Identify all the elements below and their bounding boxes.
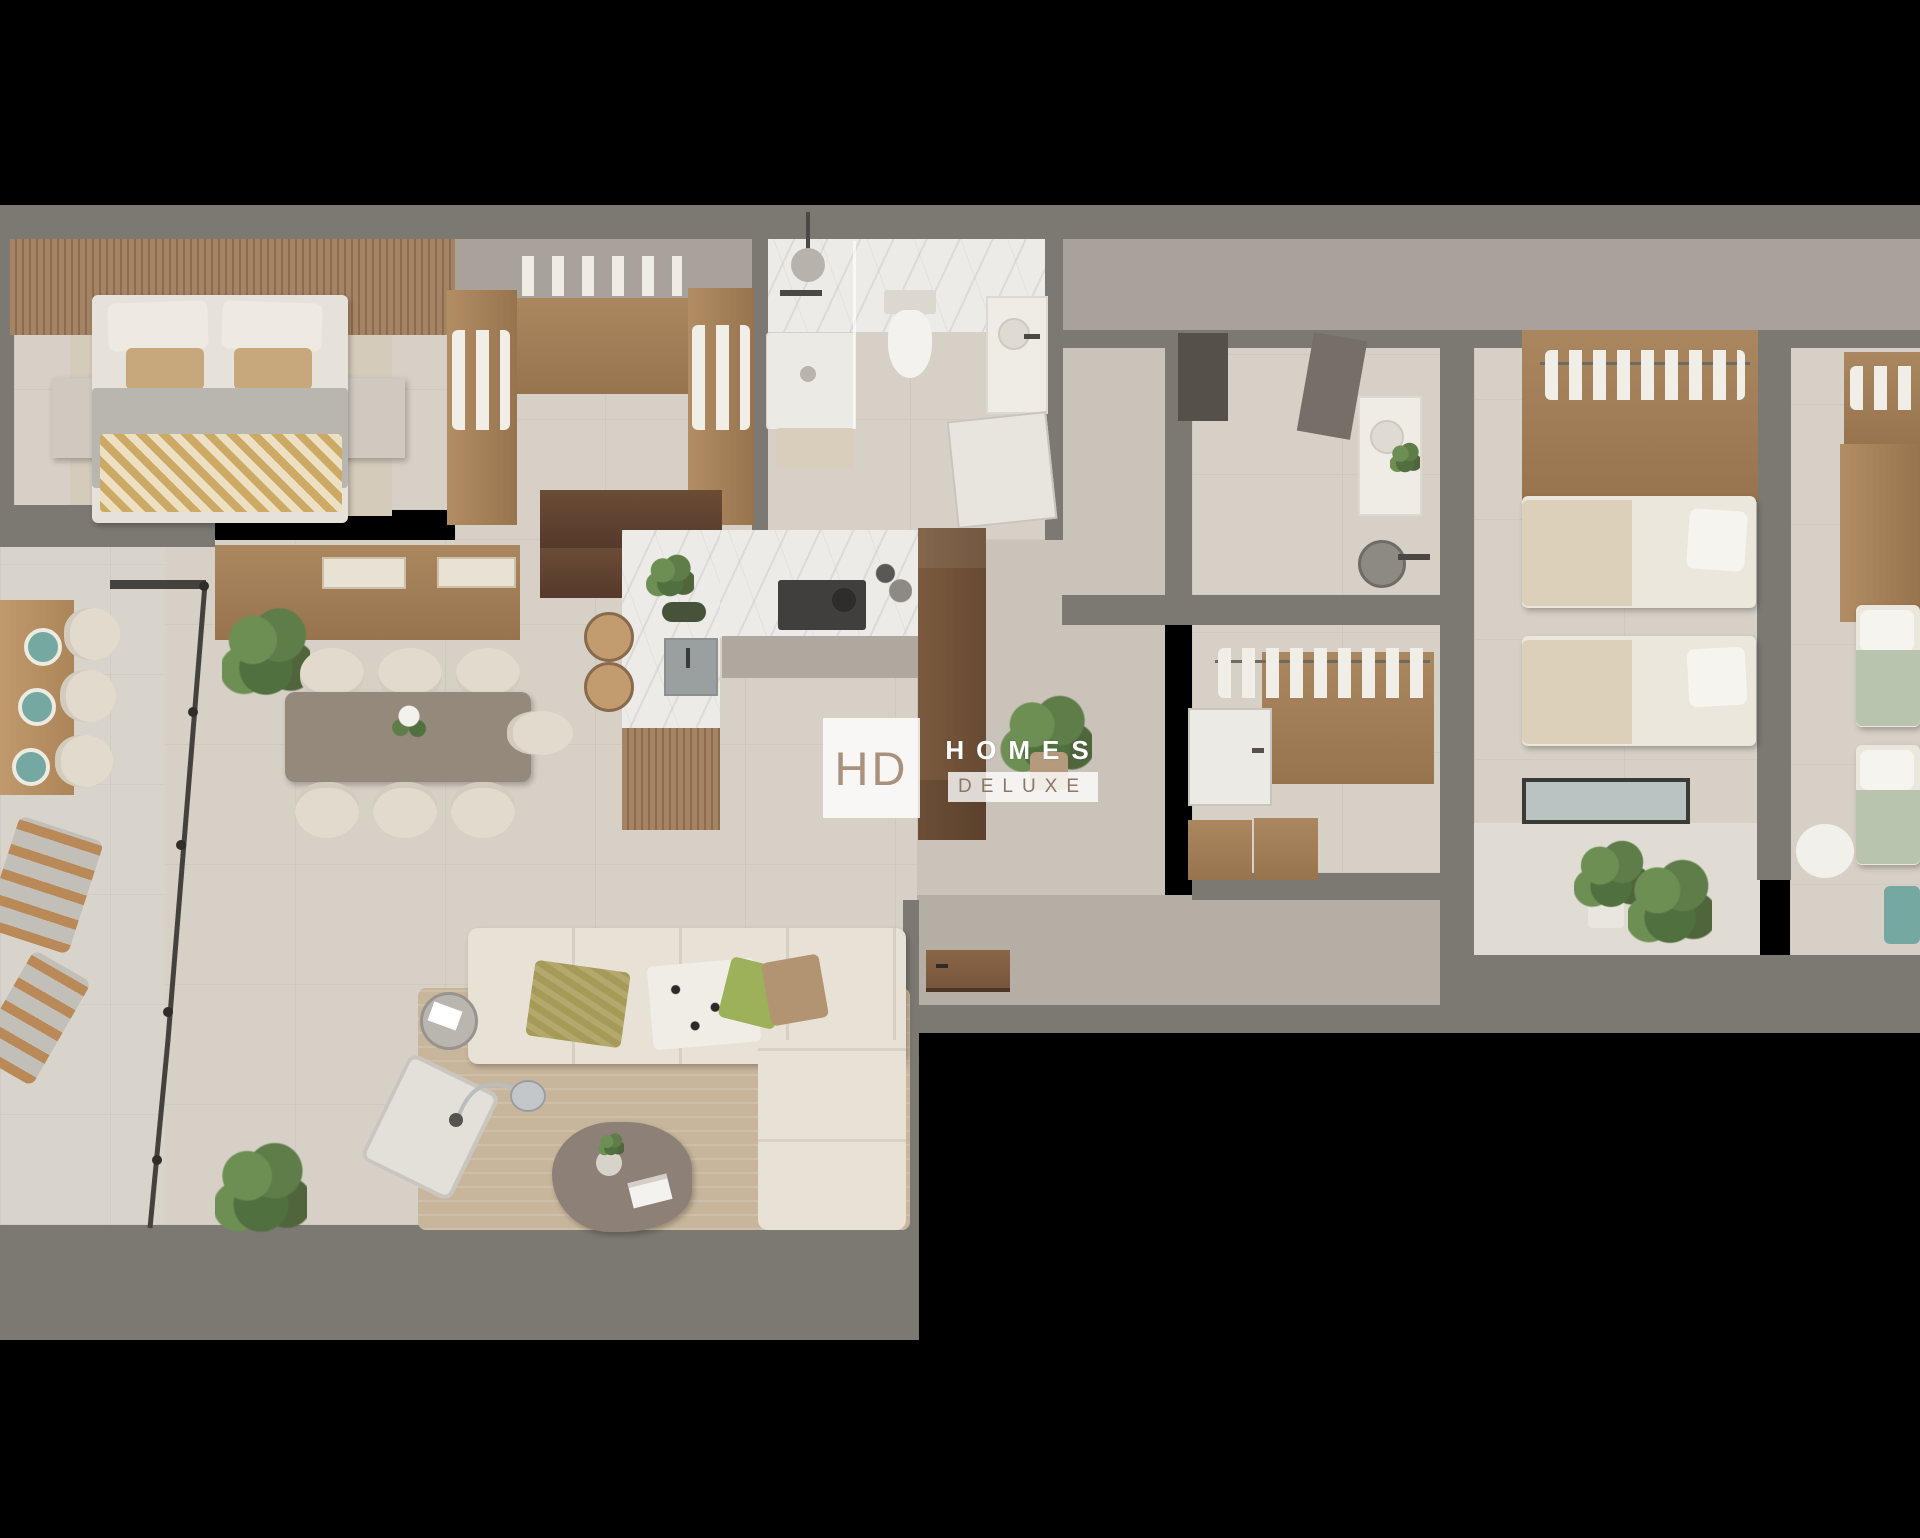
watermark-homes: HOMES xyxy=(948,734,1098,766)
glass-wall-post xyxy=(152,1155,162,1165)
watermark-line2: DELUXE xyxy=(958,776,1088,798)
lamp-shade xyxy=(511,1081,545,1111)
glass-wall-post xyxy=(176,840,186,850)
watermark-deluxe: DELUXE xyxy=(948,772,1098,802)
watermark-line1: HOMES xyxy=(945,735,1100,766)
glass-wall-post xyxy=(199,581,209,591)
sliding-door-track xyxy=(110,580,206,589)
terrace-glass-wall xyxy=(150,584,205,1228)
floorplan-render: HD HOMES DELUXE xyxy=(0,0,1920,1538)
overlay-graphics xyxy=(0,0,1920,1538)
glass-wall-post xyxy=(188,707,198,717)
lamp-base xyxy=(449,1113,463,1127)
watermark-logo-hd: HD xyxy=(823,718,920,818)
watermark-initials: HD xyxy=(835,741,909,796)
glass-wall-post xyxy=(163,1007,173,1017)
